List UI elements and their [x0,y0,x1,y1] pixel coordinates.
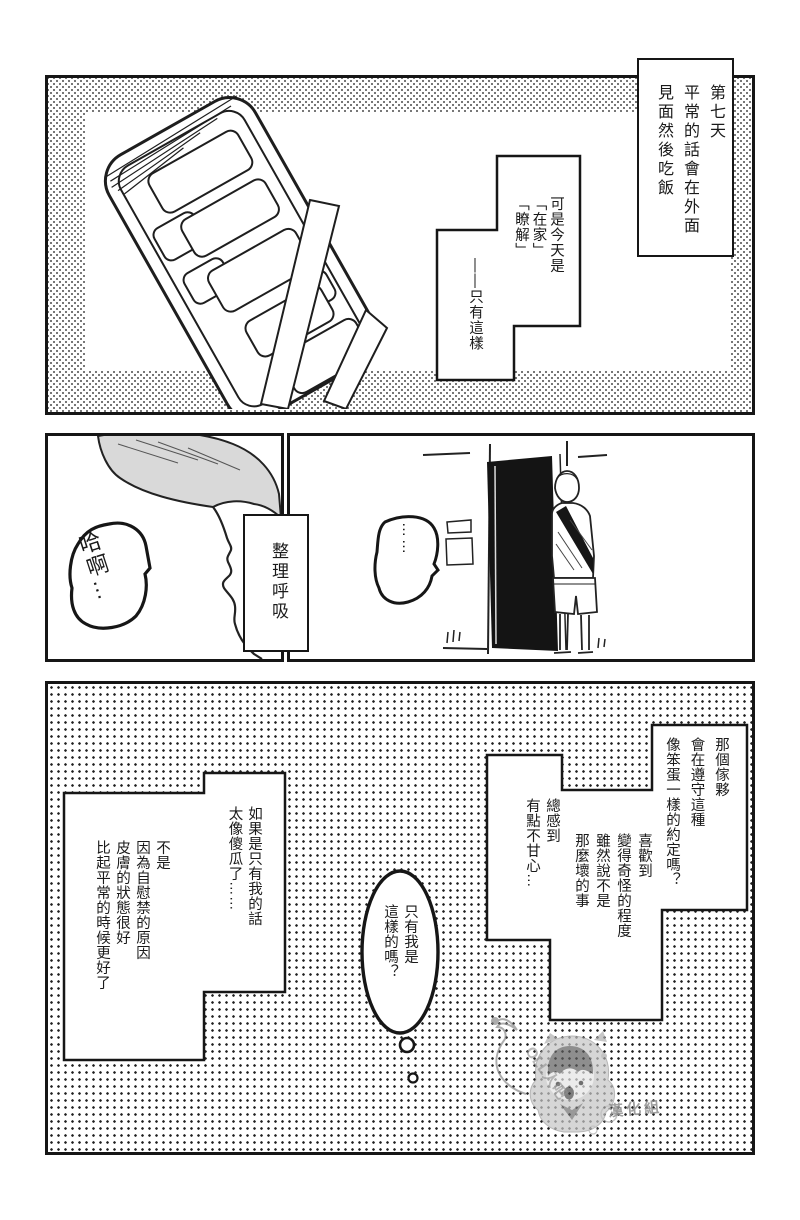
caption-text: 可是今天是 「在家」 「瞭解」 [506,196,564,326]
person-legs [554,614,593,653]
black-door [487,456,558,651]
caption-line: 「瞭解」 [512,196,530,326]
breath-caption-text: 整理呼吸 [264,542,290,642]
caption-line: ——只有這樣 [465,258,486,376]
panel-2-right [287,433,755,662]
narration-text: 第七天 平常的話會在外面 見面然後吃飯 [646,84,728,252]
intercom-panel [446,520,473,565]
monologue-like: 喜歡到 變得奇怪的程度 雖然說不是 那麼壞的事 [566,833,654,1008]
watermark-string [495,1019,526,1094]
monologue-promise: 那個傢夥 會在遵守這種 像笨蛋一樣的約定嗎？ [655,737,733,899]
silence-text: …… [392,522,416,602]
caption-line: 「在家」 [529,196,547,326]
caption-tail-text: ——只有這樣 [460,258,486,376]
monologue-skin: 不是 因為自慰禁的原因 皮膚的狀態很好 比起平常的時候更好了 [84,840,172,1015]
doorway-scene [290,436,752,659]
manga-page: 第七天 平常的話會在外面 見面然後吃飯 可是今天是 「在家」 「瞭解」 ——只有… [0,0,800,1220]
caption-line: 可是今天是 [547,196,565,326]
door-edge-highlight [495,466,496,644]
person-shorts [553,578,597,614]
monologue-fool: 如果是只有我的話 太像傻瓜了…… [219,806,263,981]
standing-person [552,471,597,653]
narration-line: 平常的話會在外面 [676,84,702,252]
narration-line: 第七天 [702,84,728,252]
monologue-vexed: 總感到 有點不甘心… [516,798,562,948]
thought-text: 只有我是 這樣的嗎？ [376,904,420,996]
narration-line: 見面然後吃飯 [650,84,676,252]
